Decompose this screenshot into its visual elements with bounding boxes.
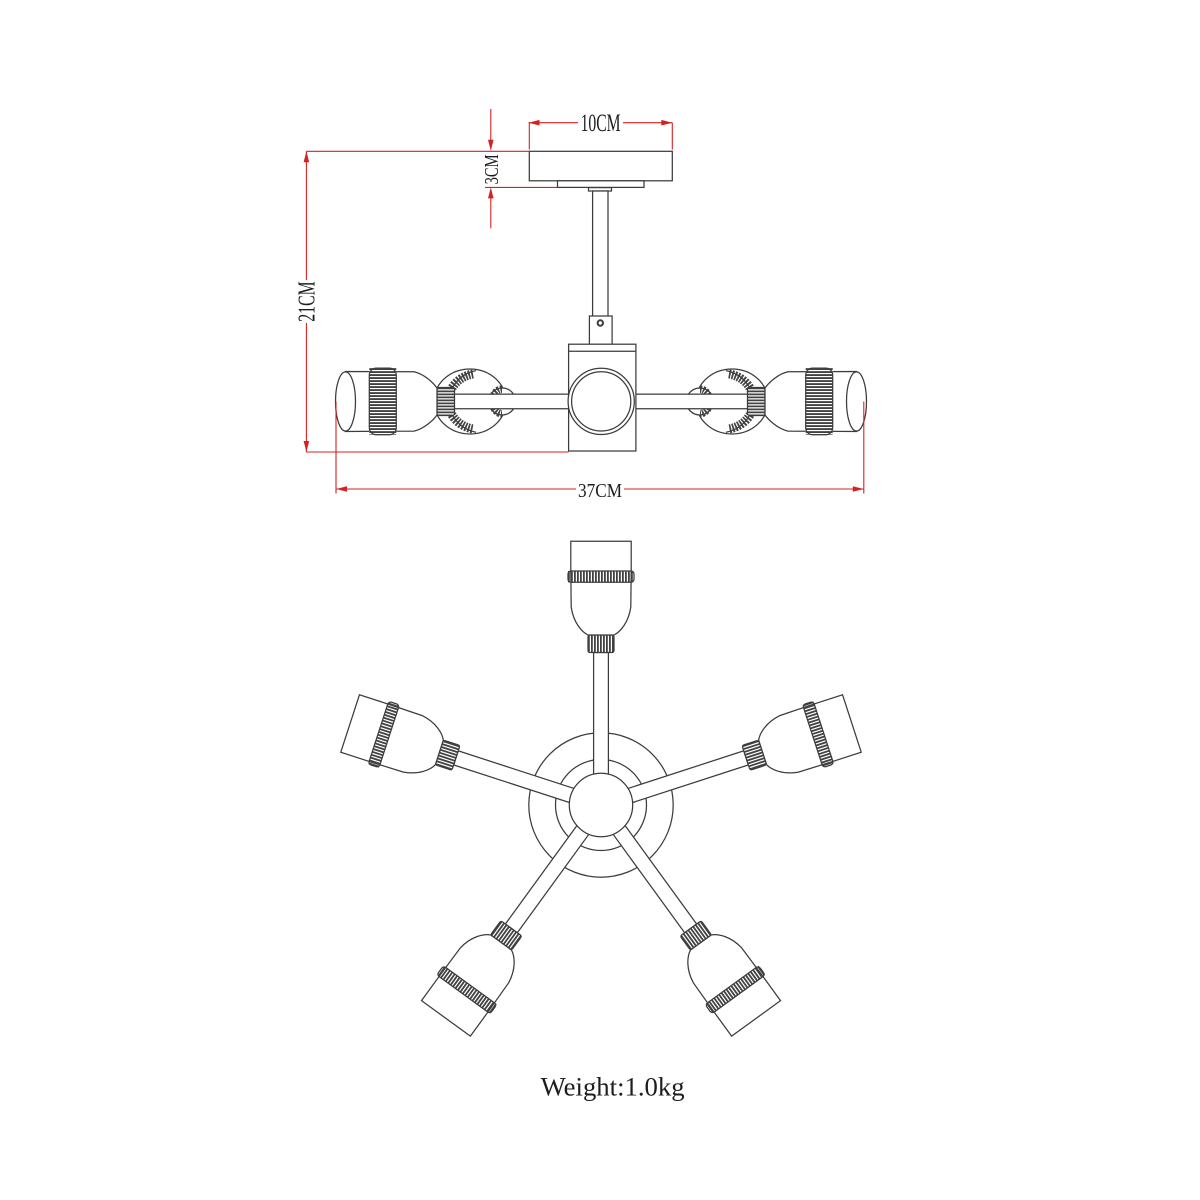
svg-text:10CM: 10CM bbox=[581, 108, 621, 137]
svg-text:21CM: 21CM bbox=[294, 281, 320, 322]
svg-text:3CM: 3CM bbox=[481, 154, 503, 184]
svg-text:37CM: 37CM bbox=[578, 480, 622, 502]
svg-text:Weight:1.0kg: Weight:1.0kg bbox=[541, 1072, 685, 1102]
